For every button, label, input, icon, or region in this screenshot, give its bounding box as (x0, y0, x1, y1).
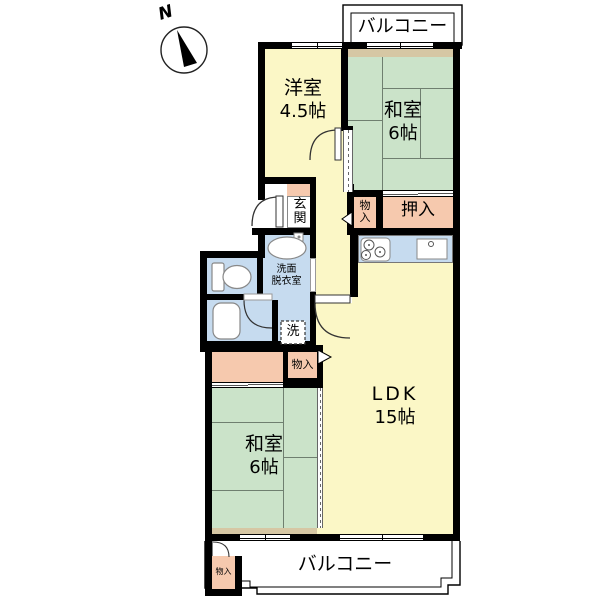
washroom-label-line1: 洗面 (263, 264, 310, 276)
storage-balcony-label: 物入 (212, 567, 235, 576)
entrance-label: 玄関 (293, 198, 307, 225)
compass-icon (161, 27, 207, 73)
japanese-room-upper-size: 6帖 (363, 124, 443, 145)
closet-strip-lower (212, 352, 283, 382)
kitchen-counter (358, 235, 453, 263)
window-western-room (292, 42, 342, 49)
window-ldk (340, 534, 423, 541)
ldk-size: 15帖 (340, 408, 450, 429)
fusuma-closet-lower (212, 382, 283, 388)
japanese-room-upper-name: 和室 (363, 100, 443, 122)
floor-plan: N バルコニー 洋室 4.5帖 和室 6帖 押入 物入 玄関 洗面 脱衣室 洗 … (0, 0, 600, 600)
balcony-bottom-label: バルコニー (280, 554, 410, 576)
washroom-label-line2: 脱衣室 (263, 276, 310, 288)
sliding-door-washroom (310, 258, 316, 292)
japanese-room-lower-size: 6帖 (224, 458, 304, 479)
fusuma-japanese-lower-ldk (317, 388, 323, 528)
north-label: N (153, 1, 178, 26)
washer-label: 洗 (281, 325, 305, 340)
window-japanese-upper (367, 42, 433, 49)
window-japanese-lower (240, 534, 290, 541)
toilet-room-floor (207, 258, 257, 294)
fusuma-oshiire (383, 190, 453, 197)
oshiire-label: 押入 (383, 201, 453, 221)
bathroom-floor (207, 300, 272, 341)
ldk-name: LDK (340, 384, 450, 406)
japanese-room-lower-name: 和室 (224, 434, 304, 456)
entrance-door-icon (252, 196, 283, 227)
western-room-name: 洋室 (263, 78, 343, 100)
fusuma-japanese-upper-entry (343, 130, 353, 192)
japanese-room-upper-ledge (348, 49, 453, 57)
western-room-size: 4.5帖 (263, 102, 343, 123)
storage-middle-label: 物入 (288, 359, 317, 372)
balcony-top-label: バルコニー (352, 17, 453, 38)
storage-upper-label: 物入 (359, 200, 371, 223)
balcony-storage-door-icon (213, 542, 229, 557)
